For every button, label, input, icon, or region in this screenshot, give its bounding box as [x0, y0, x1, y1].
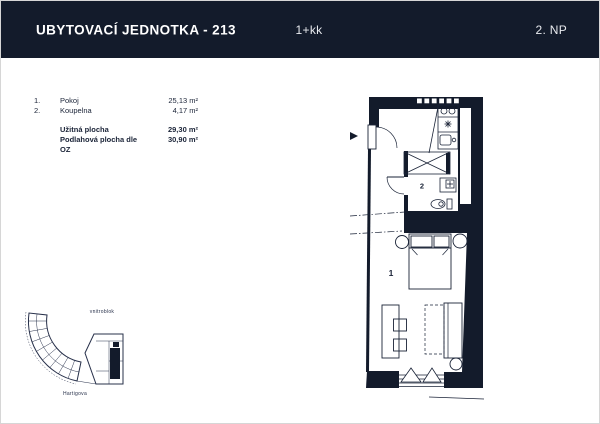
chair-icon: [394, 339, 407, 351]
building-key-plan: [16, 301, 131, 401]
window: [399, 368, 444, 387]
floor-number: 2. NP: [535, 23, 567, 37]
courtyard-label: vnitroblok: [90, 309, 114, 315]
bedside-table-icon: [396, 236, 409, 249]
area-row-pokoj: 1. Pokoj 25,13 m²: [34, 96, 198, 106]
pillow-icon: [411, 236, 432, 247]
unit-floor-plan: [341, 91, 496, 406]
chair-icon: [394, 319, 407, 331]
sink-icon: [440, 135, 451, 145]
room-area: 4,17 m²: [138, 106, 198, 116]
street-label: Hartigova: [63, 391, 87, 397]
bathroom-door: [387, 177, 404, 194]
side-table-icon: [450, 358, 462, 370]
table-spacer: [34, 116, 198, 125]
wardrobe: [404, 152, 450, 174]
bedside-table-icon: [453, 234, 467, 248]
area-row-koupelna: 2. Koupelna 4,17 m²: [34, 106, 198, 116]
area-row-usable-total: Užitná plocha 29,30 m²: [34, 125, 198, 135]
table-and-chairs: [382, 305, 407, 358]
unit-title: UBYTOVACÍ JEDNOTKA - 213: [36, 22, 236, 37]
highlighted-unit-annex: [113, 342, 119, 347]
unit-layout-type: 1+kk: [296, 23, 323, 37]
bathroom-fixtures: [431, 178, 456, 209]
star-symbol-icon: [445, 121, 452, 128]
room-label-2: 2: [420, 182, 424, 191]
floor-plan-sheet: UBYTOVACÍ JEDNOTKA - 213 1+kk 2. NP 1. P…: [0, 0, 600, 424]
room-number: 2.: [34, 106, 60, 116]
shaft-slot: [460, 108, 471, 204]
sofa: [425, 303, 462, 370]
room-name: Pokoj: [60, 96, 138, 106]
entry-door: [368, 125, 397, 149]
room-label-1: 1: [389, 268, 394, 278]
room-area: 25,13 m²: [138, 96, 198, 106]
total-name: Užitná plocha: [60, 125, 138, 135]
kitchenette: [429, 105, 458, 153]
total-area: 30,90 m²: [138, 135, 198, 155]
header-bar: UBYTOVACÍ JEDNOTKA - 213 1+kk 2. NP: [1, 1, 600, 58]
washbasin-icon: [440, 178, 456, 192]
highlighted-unit: [110, 348, 120, 379]
double-bed: [396, 234, 468, 289]
total-name: Podlahová plocha dle OZ: [60, 135, 138, 155]
room-name: Koupelna: [60, 106, 138, 116]
entrance-arrow-icon: [350, 132, 358, 140]
room-number: 1.: [34, 96, 60, 106]
toilet-icon: [431, 199, 452, 209]
pillow-icon: [434, 236, 449, 247]
ground-line: [429, 397, 484, 399]
area-row-floor-total: Podlahová plocha dle OZ 30,90 m²: [34, 135, 198, 155]
total-area: 29,30 m²: [138, 125, 198, 135]
section-lines: [350, 212, 405, 234]
area-table: 1. Pokoj 25,13 m² 2. Koupelna 4,17 m² Už…: [34, 96, 198, 155]
sink-drain-icon: [452, 138, 456, 142]
